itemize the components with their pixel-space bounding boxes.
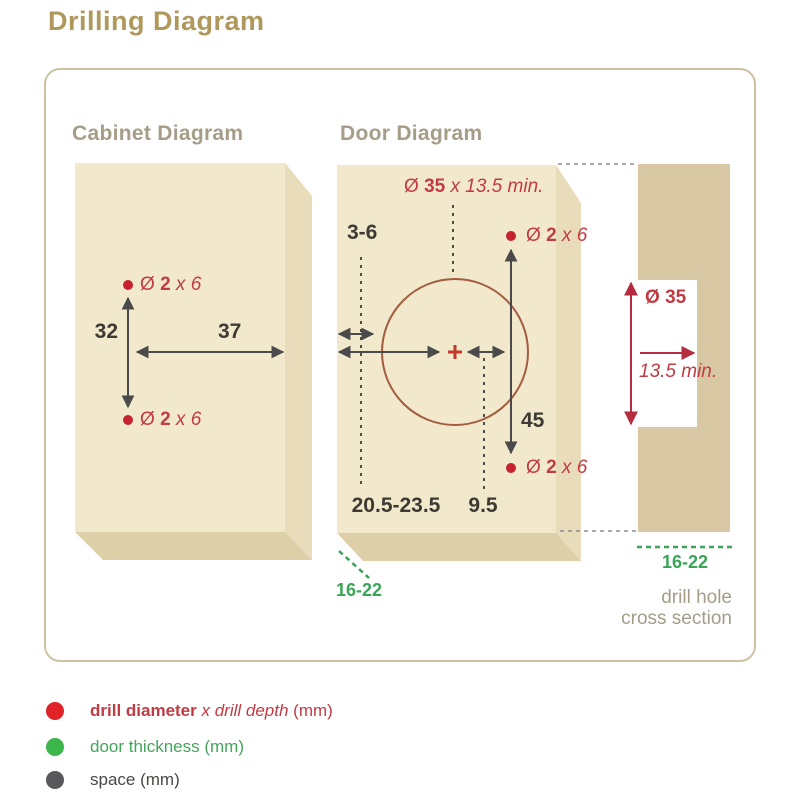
label-part: Ø [140, 274, 160, 295]
cabinet-hole-bottom-label: Ø 2 x 6 [140, 409, 201, 431]
label-part: 35 [665, 287, 686, 308]
label-part: 2 [546, 457, 557, 478]
cabinet-dim-32: 32 [80, 320, 118, 344]
cabinet-side-face [285, 163, 312, 560]
section-depth-label: 13.5 min. [639, 361, 717, 383]
cabinet-drill-hole-dot-bottom [123, 415, 133, 425]
caption-line-2: cross section [598, 609, 732, 630]
section-thickness-label: 16-22 [645, 552, 725, 573]
door-dim-3-6: 3-6 [347, 221, 377, 245]
label-part: 35 [424, 176, 445, 197]
legend-space-label: space (mm) [90, 770, 180, 790]
label-part: drill diameter [90, 701, 197, 720]
section-caption: drill hole cross section [598, 588, 732, 630]
label-part: Ø [140, 409, 160, 430]
label-part: x drill depth [197, 701, 289, 720]
label-part: 2 [160, 409, 171, 430]
label-part: 2 [546, 225, 557, 246]
legend-red-dot-icon [46, 702, 64, 720]
label-part: Ø [526, 225, 546, 246]
caption-line-1: drill hole [598, 588, 732, 609]
door-drill-hole-dot-bottom [506, 463, 516, 473]
section-diameter-label: Ø 35 [645, 287, 686, 309]
legend-green-dot-icon [46, 738, 64, 756]
label-part: x 6 [557, 457, 588, 478]
label-part: Ø [526, 457, 546, 478]
label-part: Ø [645, 287, 665, 308]
door-hole-bottom-label: Ø 2 x 6 [526, 457, 587, 479]
label-part: 2 [160, 274, 171, 295]
door-thickness-label: 16-22 [336, 580, 382, 601]
label-part: Ø [404, 176, 424, 197]
legend-item-drill: drill diameter x drill depth (mm) [46, 701, 333, 721]
label-part: x 13.5 min. [445, 176, 543, 197]
label-part: x 6 [171, 274, 202, 295]
label-part: x 6 [171, 409, 202, 430]
cabinet-hole-top-label: Ø 2 x 6 [140, 274, 201, 296]
legend-drill-label: drill diameter x drill depth (mm) [90, 701, 333, 721]
diagram-canvas [0, 0, 800, 800]
legend-gray-dot-icon [46, 771, 64, 789]
label-part: x 6 [557, 225, 588, 246]
cabinet-drill-hole-dot-top [123, 280, 133, 290]
door-bottom-face [337, 533, 581, 561]
door-hole-top-label: Ø 2 x 6 [526, 225, 587, 247]
door-dim-20.5-23.5: 20.5-23.5 [346, 494, 446, 518]
cabinet-front-face [75, 163, 285, 532]
drilling-diagram-page: Drilling Diagram Cabinet Diagram Door Di… [0, 0, 800, 800]
label-part: (mm) [288, 701, 332, 720]
cabinet-bottom-face [75, 532, 312, 560]
cabinet-dim-37: 37 [218, 320, 241, 344]
legend-thickness-label: door thickness (mm) [90, 737, 244, 757]
door-dim-45: 45 [521, 409, 544, 433]
door-dim-9.5: 9.5 [458, 494, 508, 518]
legend-item-space: space (mm) [46, 770, 180, 790]
cup-hole-label: Ø 35 x 13.5 min. [404, 176, 543, 198]
door-drill-hole-dot-top [506, 231, 516, 241]
legend-item-thickness: door thickness (mm) [46, 737, 244, 757]
